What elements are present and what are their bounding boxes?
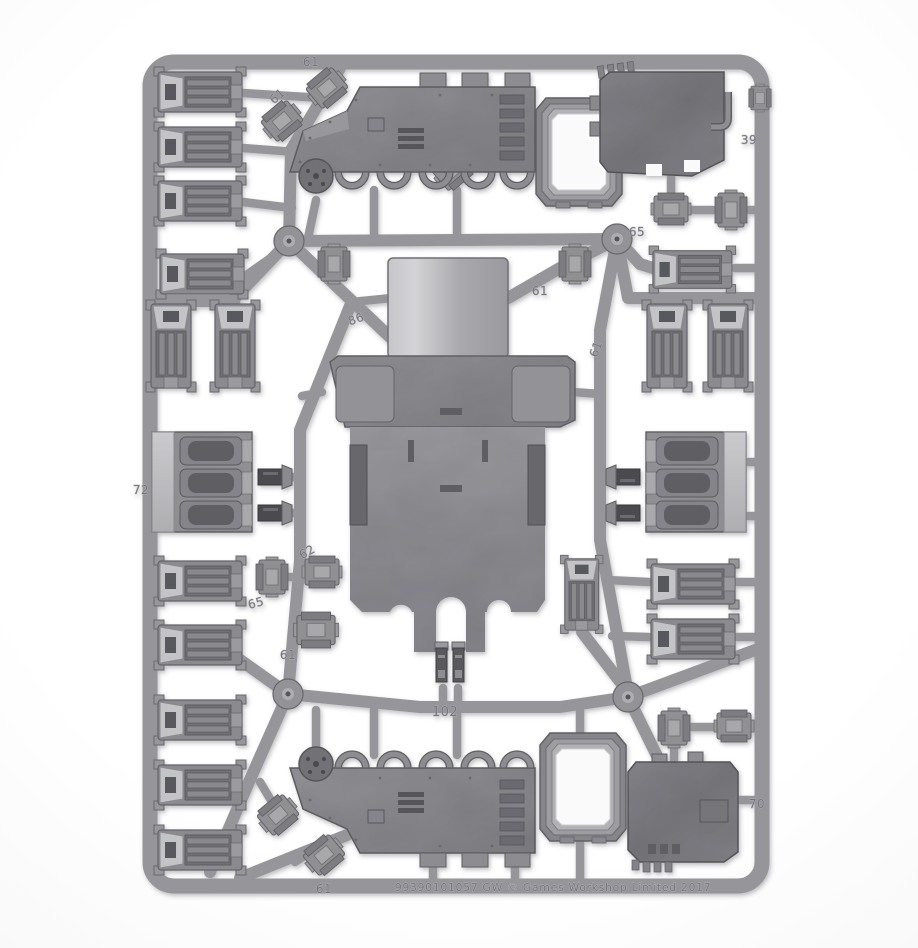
exhaust-peg: [258, 465, 292, 489]
ramp-body: [600, 72, 724, 176]
hull-slot: [482, 440, 488, 462]
block-edge: [152, 432, 174, 532]
hull-pod-right: [512, 366, 570, 422]
track-link-section: [642, 300, 692, 392]
panel-hatch: [368, 810, 384, 823]
small-box-fitting: [651, 193, 691, 225]
emboss-number: 61: [280, 648, 296, 662]
emboss-number: 102: [432, 705, 458, 720]
emboss-number: 61: [532, 284, 548, 298]
small-box-fitting: [252, 790, 303, 840]
hull-slot: [440, 485, 462, 492]
exhaust-block-right: [606, 432, 746, 532]
hull-sponson-right: [528, 445, 545, 525]
panel-tab: [462, 853, 488, 867]
hatch-frame-bottom: [540, 733, 626, 843]
panel-grille: [398, 792, 424, 813]
sprue: 61 61 39 86 61 61 65 72 62 65 61 102 61 …: [133, 55, 771, 896]
track-link-section: [210, 300, 260, 392]
hull-sponson-left: [350, 445, 367, 525]
small-box-fitting: [294, 612, 339, 648]
block-recesses: [180, 437, 242, 529]
ramp-panel-detail: [700, 800, 728, 822]
track-link-section: [561, 555, 604, 633]
small-box-fitting: [658, 708, 690, 748]
hull-slot: [440, 408, 462, 415]
junction-disc: [613, 682, 643, 712]
ramp-slat: [648, 844, 656, 854]
emboss-number: 61: [316, 882, 332, 896]
drive-hub-disc: [299, 159, 333, 193]
emboss-number: 72: [133, 483, 149, 497]
ramp-door-bottom: [628, 752, 738, 872]
photo-stage: 61 61 39 86 61 61 65 72 62 65 61 102 61 …: [0, 0, 918, 948]
panel-hatch: [368, 118, 384, 131]
track-link-section: [154, 760, 246, 810]
emboss-number: 39: [741, 133, 757, 147]
panel-grille: [398, 128, 424, 149]
small-box-fitting: [715, 190, 747, 230]
hull-pod-left: [336, 366, 394, 422]
ramp-notch: [646, 164, 662, 176]
track-link-section: [649, 246, 735, 293]
ramp-door-top: [590, 61, 728, 176]
hull-top-box: [388, 258, 508, 358]
frame-clip: [749, 84, 771, 112]
exhaust-block-left: [152, 432, 292, 532]
wheel-arches: [335, 751, 534, 768]
track-link-section: [154, 556, 246, 606]
drive-hub-disc: [299, 747, 333, 781]
block-edge: [724, 432, 746, 532]
emboss-number: 70: [749, 797, 765, 811]
ramp-notch: [684, 160, 700, 172]
small-box-fitting: [559, 244, 591, 284]
junction-disc: [602, 224, 632, 254]
emboss-number: 65: [629, 225, 645, 239]
emboss-number: 61: [303, 55, 319, 69]
track-link-section: [703, 300, 753, 392]
panel-tab: [505, 853, 530, 867]
exhaust-peg: [606, 501, 640, 525]
track-link-section: [647, 614, 739, 664]
small-box-fitting: [714, 710, 754, 742]
panel-tab: [420, 853, 446, 867]
ramp-slat: [672, 844, 680, 854]
track-link-section: [154, 122, 246, 172]
track-link-section: [154, 176, 246, 226]
block-recesses: [656, 437, 718, 529]
exhaust-peg: [606, 465, 640, 489]
sprue-photo: 61 61 39 86 61 61 65 72 62 65 61 102 61 …: [0, 0, 918, 948]
track-link-section: [154, 620, 246, 670]
track-link-section: [647, 559, 739, 609]
junction-disc: [273, 679, 303, 709]
track-link-section: [146, 300, 196, 392]
copyright-text: 99390101057 GW © Games Workshop Limited …: [395, 881, 712, 894]
exhaust-peg: [258, 501, 292, 525]
junction-disc: [274, 226, 304, 256]
small-box-fitting: [302, 556, 342, 588]
small-box-fitting: [318, 244, 350, 284]
twin-exhaust-stack: [435, 642, 465, 682]
hull-slot: [408, 440, 414, 462]
track-link-section: [154, 825, 246, 875]
track-link-section: [154, 67, 246, 117]
ramp-slat: [660, 844, 668, 854]
small-box-fitting: [256, 557, 288, 597]
track-link-section: [154, 695, 246, 745]
hull-body: [350, 427, 545, 652]
emboss-number: 65: [246, 594, 265, 612]
track-link-section: [156, 249, 248, 299]
